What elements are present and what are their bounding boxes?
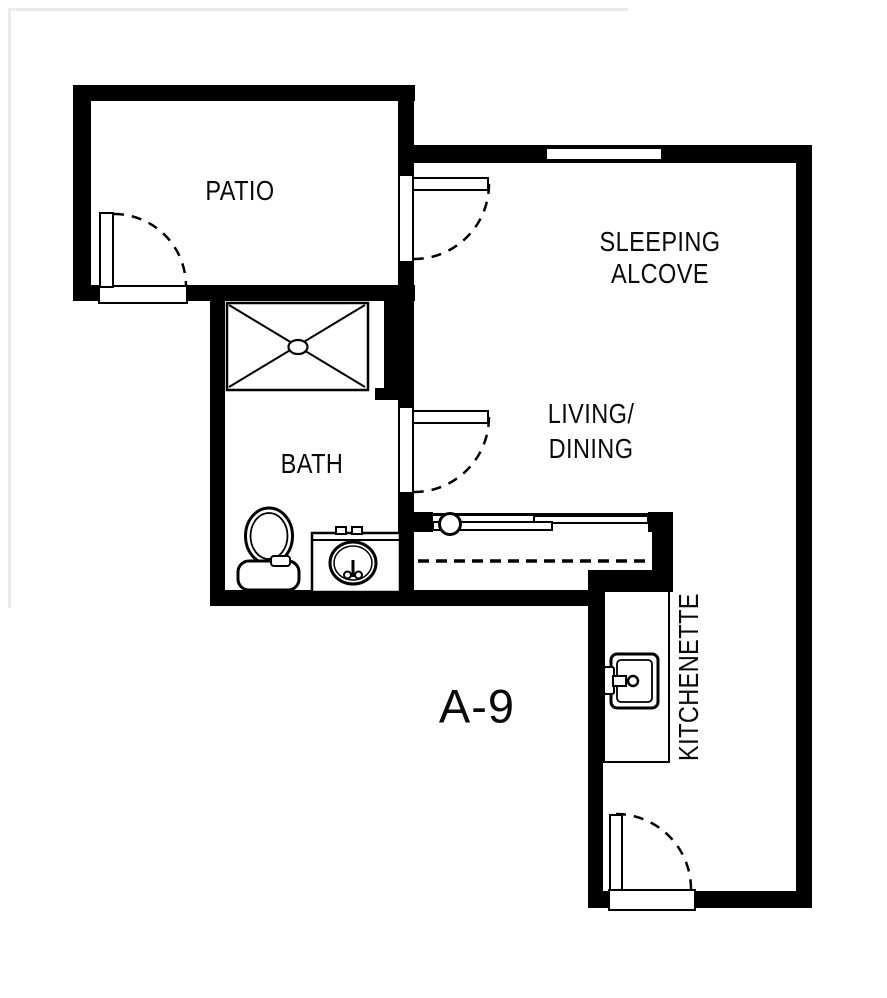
floor-plan: PATIO SLEEPING ALCOVE LIVING/ DINING BAT… bbox=[0, 0, 887, 998]
closet-slider-knob bbox=[440, 514, 461, 535]
patio-door-arc bbox=[114, 214, 186, 286]
room-label-living-line1: LIVING/ bbox=[548, 396, 635, 431]
room-label-patio: PATIO bbox=[205, 175, 274, 207]
room-label-sleeping-line2: ALCOVE bbox=[599, 258, 720, 290]
shower-drain bbox=[289, 340, 308, 354]
room-label-living-line2: DINING bbox=[548, 431, 635, 466]
entry-door-arc bbox=[616, 814, 691, 889]
shower bbox=[227, 303, 368, 390]
toilet bbox=[238, 508, 299, 590]
room-label-sleeping-alcove: SLEEPING ALCOVE bbox=[599, 226, 720, 290]
room-label-bath: BATH bbox=[281, 448, 344, 480]
room-label-sleeping-line1: SLEEPING bbox=[599, 226, 720, 258]
bath-door-arc bbox=[414, 417, 489, 492]
unit-title: A-9 bbox=[439, 679, 515, 734]
alcove-door-arc bbox=[414, 184, 489, 259]
kitchen-sink bbox=[604, 654, 658, 708]
room-label-living-dining: LIVING/ DINING bbox=[548, 396, 635, 466]
room-label-kitchenette: KITCHENETTE bbox=[673, 593, 705, 761]
plan-linework bbox=[0, 0, 887, 998]
vanity-sink bbox=[312, 527, 400, 592]
